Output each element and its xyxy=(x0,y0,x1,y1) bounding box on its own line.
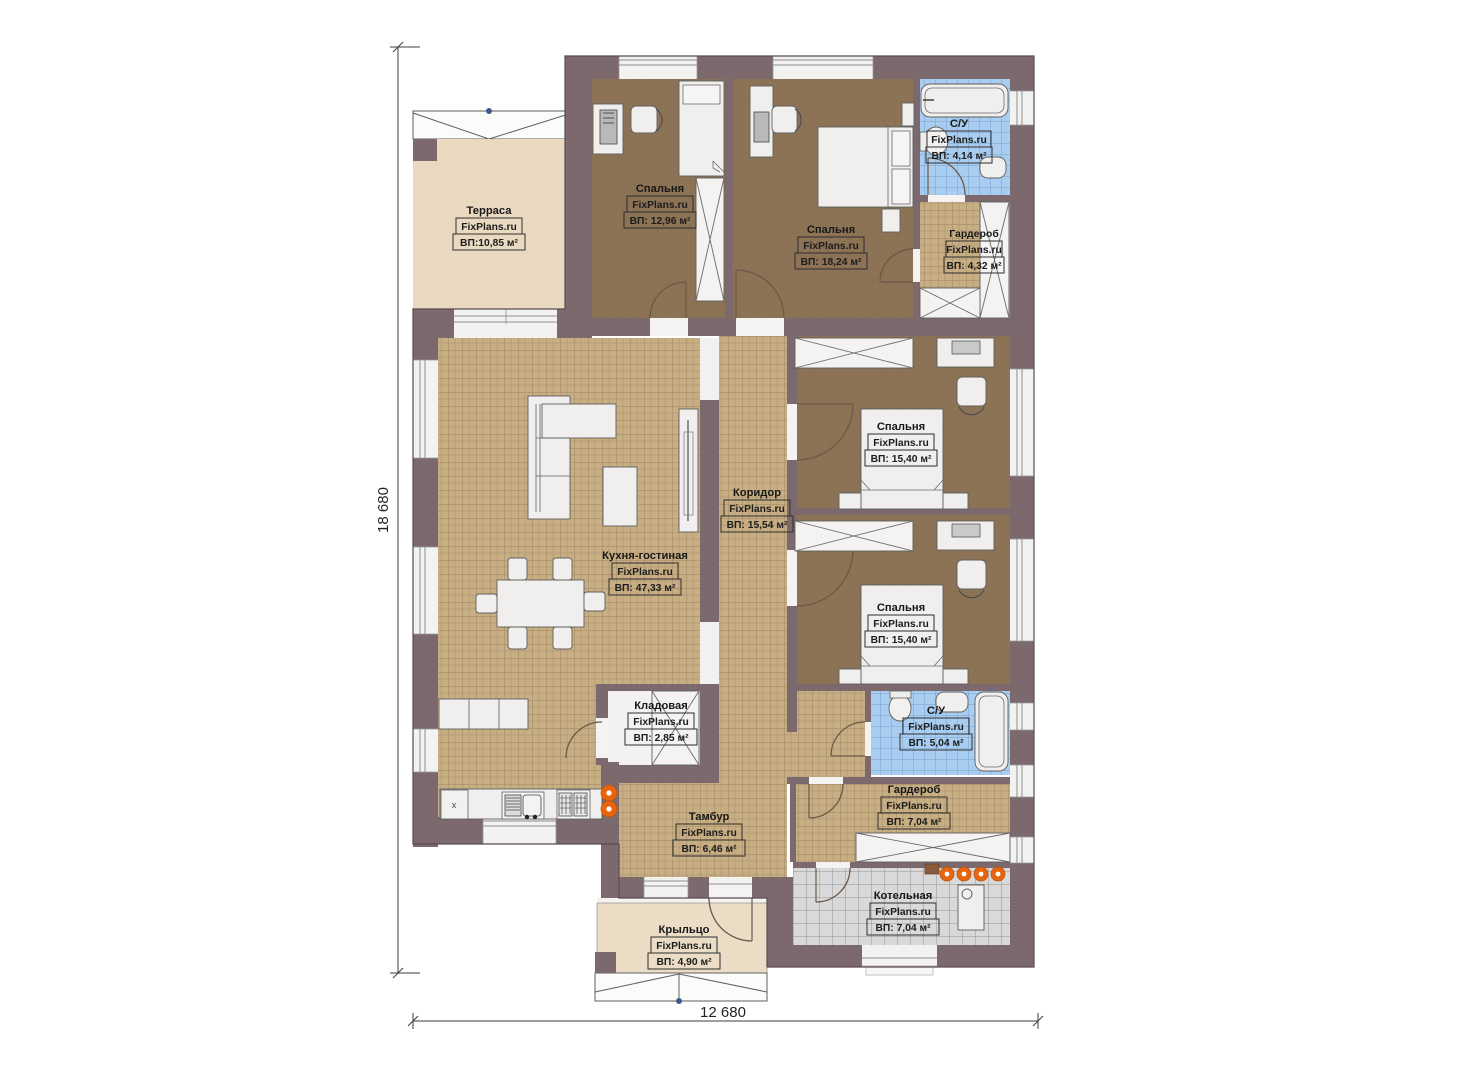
svg-text:С/У: С/У xyxy=(950,118,969,130)
svg-text:FixPlans.ru: FixPlans.ru xyxy=(633,717,689,728)
svg-text:FixPlans.ru: FixPlans.ru xyxy=(946,245,1002,256)
svg-text:FixPlans.ru: FixPlans.ru xyxy=(886,801,942,812)
svg-text:ВП: 4,14 м²: ВП: 4,14 м² xyxy=(931,151,987,162)
svg-text:ВП: 5,04 м²: ВП: 5,04 м² xyxy=(908,738,964,749)
svg-text:FixPlans.ru: FixPlans.ru xyxy=(803,241,859,252)
svg-text:Кладовая: Кладовая xyxy=(634,700,688,712)
svg-text:Коридор: Коридор xyxy=(733,487,781,499)
svg-text:FixPlans.ru: FixPlans.ru xyxy=(656,941,712,952)
svg-text:Гардероб: Гардероб xyxy=(888,784,941,796)
svg-text:С/У: С/У xyxy=(927,705,946,717)
svg-text:FixPlans.ru: FixPlans.ru xyxy=(931,135,987,146)
svg-text:ВП: 6,46 м²: ВП: 6,46 м² xyxy=(681,844,737,855)
svg-text:ВП: 4,32 м²: ВП: 4,32 м² xyxy=(946,261,1002,272)
svg-text:ВП: 18,24 м²: ВП: 18,24 м² xyxy=(801,257,862,268)
svg-text:Крыльцо: Крыльцо xyxy=(659,924,710,936)
svg-text:18 680: 18 680 xyxy=(375,487,392,533)
svg-text:ВП: 12,96 м²: ВП: 12,96 м² xyxy=(630,216,691,227)
svg-text:ВП: 7,04 м²: ВП: 7,04 м² xyxy=(875,923,931,934)
svg-text:Котельная: Котельная xyxy=(874,890,933,902)
svg-text:FixPlans.ru: FixPlans.ru xyxy=(632,200,688,211)
svg-text:ВП: 7,04 м²: ВП: 7,04 м² xyxy=(886,817,942,828)
svg-text:Спальня: Спальня xyxy=(877,602,925,614)
svg-text:Терраса: Терраса xyxy=(467,205,513,217)
svg-text:FixPlans.ru: FixPlans.ru xyxy=(461,222,517,233)
svg-text:FixPlans.ru: FixPlans.ru xyxy=(681,828,737,839)
svg-text:ВП: 2,85 м²: ВП: 2,85 м² xyxy=(633,733,689,744)
svg-text:x: x xyxy=(452,800,457,810)
svg-text:ВП: 4,90 м²: ВП: 4,90 м² xyxy=(656,957,712,968)
svg-text:Тамбур: Тамбур xyxy=(689,811,730,823)
svg-text:ВП:10,85 м²: ВП:10,85 м² xyxy=(460,238,519,249)
svg-text:ВП: 15,54 м²: ВП: 15,54 м² xyxy=(727,520,788,531)
svg-text:FixPlans.ru: FixPlans.ru xyxy=(875,907,931,918)
svg-text:FixPlans.ru: FixPlans.ru xyxy=(873,619,929,630)
svg-text:ВП: 47,33 м²: ВП: 47,33 м² xyxy=(615,583,676,594)
svg-text:12 680: 12 680 xyxy=(700,1004,746,1021)
svg-text:Гардероб: Гардероб xyxy=(949,228,999,240)
svg-text:Спальня: Спальня xyxy=(807,224,855,236)
svg-text:FixPlans.ru: FixPlans.ru xyxy=(873,438,929,449)
svg-text:ВП: 15,40 м²: ВП: 15,40 м² xyxy=(871,454,932,465)
svg-text:FixPlans.ru: FixPlans.ru xyxy=(908,722,964,733)
svg-text:ВП: 15,40 м²: ВП: 15,40 м² xyxy=(871,635,932,646)
svg-text:Спальня: Спальня xyxy=(636,183,684,195)
svg-text:Спальня: Спальня xyxy=(877,421,925,433)
svg-text:FixPlans.ru: FixPlans.ru xyxy=(617,567,673,578)
svg-text:FixPlans.ru: FixPlans.ru xyxy=(729,504,785,515)
svg-text:Кухня-гостиная: Кухня-гостиная xyxy=(602,550,688,562)
